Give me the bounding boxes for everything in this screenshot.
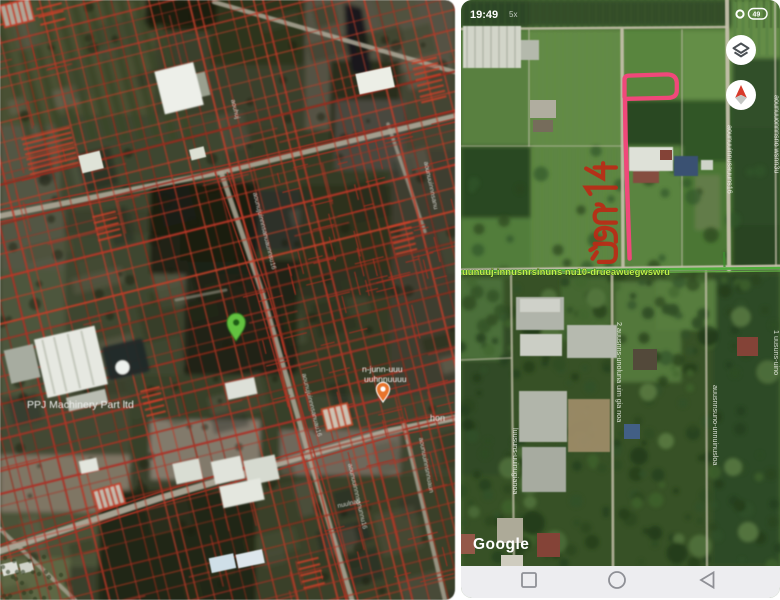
svg-text:auusnnsuno-unnuinusloa: auusnnsuno-unnuinusloa	[711, 385, 720, 465]
svg-text:1 uusuns-uino: 1 uusuns-uino	[772, 330, 780, 375]
svg-text:5x: 5x	[509, 10, 517, 19]
svg-text:hon: hon	[430, 413, 445, 423]
svg-text:PPJ Machinery Part ltd: PPJ Machinery Part ltd	[27, 399, 134, 411]
svg-text:aounuuonnnsno wsnn3u: aounuuonnnsno wsnn3u	[773, 95, 780, 173]
svg-text:uunuuj-innusnrsinuns nu10-drue: uunuuj-innusnrsinuns nu10-drueawuegwswru	[462, 267, 670, 278]
svg-text:luusuns-uuinugianoa: luusuns-uuinugianoa	[511, 428, 520, 494]
svg-text:aounuuinnusauuns16: aounuuinnusauuns16	[726, 125, 735, 194]
svg-text:19:49: 19:49	[470, 9, 498, 21]
svg-text:2 auusnns-unoluna uim gia noa: 2 auusnns-unoluna uim gia noa	[615, 322, 624, 422]
svg-text:uuhnnuuuu: uuhnnuuuu	[364, 374, 407, 384]
svg-text:49: 49	[753, 12, 761, 19]
svg-text:Google: Google	[473, 536, 529, 553]
svg-text:n-junn-uuu: n-junn-uuu	[362, 364, 403, 374]
